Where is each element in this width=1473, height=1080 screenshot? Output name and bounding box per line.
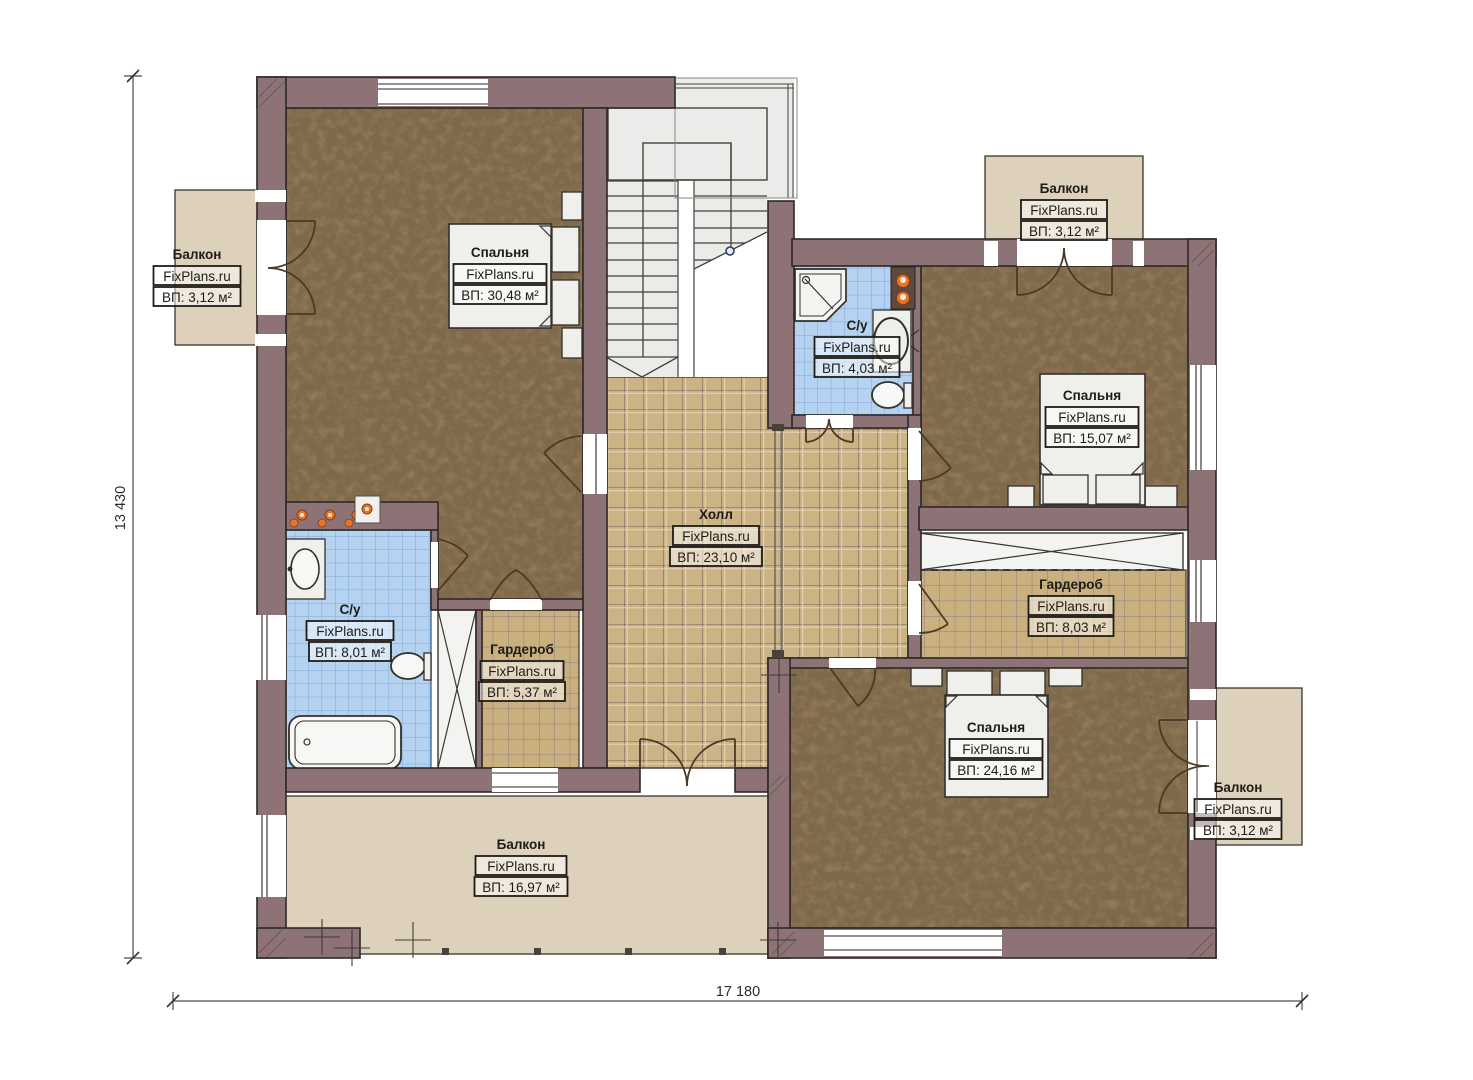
svg-text:Гардероб: Гардероб [490,642,554,657]
svg-text:Балкон: Балкон [497,837,546,852]
svg-text:13 430: 13 430 [113,486,129,530]
svg-text:FixPlans.ru: FixPlans.ru [962,742,1030,757]
svg-text:17 180: 17 180 [716,984,760,1000]
svg-text:Спальня: Спальня [967,720,1025,735]
svg-text:FixPlans.ru: FixPlans.ru [1204,802,1272,817]
svg-text:ВП: 16,97 м²: ВП: 16,97 м² [482,880,560,895]
svg-text:Балкон: Балкон [1040,181,1089,196]
svg-text:Балкон: Балкон [1214,780,1263,795]
svg-text:FixPlans.ru: FixPlans.ru [316,624,384,639]
svg-text:FixPlans.ru: FixPlans.ru [1030,203,1098,218]
svg-text:FixPlans.ru: FixPlans.ru [163,269,231,284]
svg-text:С/у: С/у [339,602,361,617]
svg-text:FixPlans.ru: FixPlans.ru [466,267,534,282]
svg-text:ВП: 8,01 м²: ВП: 8,01 м² [315,645,386,660]
svg-text:Спальня: Спальня [471,245,529,260]
svg-text:ВП: 30,48 м²: ВП: 30,48 м² [461,288,539,303]
svg-text:С/у: С/у [846,318,868,333]
svg-text:Гардероб: Гардероб [1039,577,1103,592]
svg-text:Балкон: Балкон [173,247,222,262]
svg-text:FixPlans.ru: FixPlans.ru [488,664,556,679]
svg-text:FixPlans.ru: FixPlans.ru [1037,599,1105,614]
svg-text:Холл: Холл [699,507,733,522]
svg-text:ВП: 3,12 м²: ВП: 3,12 м² [1029,224,1100,239]
svg-text:ВП: 24,16 м²: ВП: 24,16 м² [957,763,1035,778]
svg-text:FixPlans.ru: FixPlans.ru [823,340,891,355]
svg-text:ВП: 23,10 м²: ВП: 23,10 м² [677,550,755,565]
svg-text:Спальня: Спальня [1063,388,1121,403]
svg-text:ВП: 4,03 м²: ВП: 4,03 м² [822,361,893,376]
svg-text:ВП: 3,12 м²: ВП: 3,12 м² [1203,823,1274,838]
svg-text:ВП: 15,07 м²: ВП: 15,07 м² [1053,431,1131,446]
svg-text:ВП: 8,03 м²: ВП: 8,03 м² [1036,620,1107,635]
svg-text:FixPlans.ru: FixPlans.ru [487,859,555,874]
svg-text:FixPlans.ru: FixPlans.ru [682,529,750,544]
svg-text:FixPlans.ru: FixPlans.ru [1058,410,1126,425]
svg-text:ВП: 5,37 м²: ВП: 5,37 м² [487,685,558,700]
svg-text:ВП: 3,12 м²: ВП: 3,12 м² [162,290,233,305]
